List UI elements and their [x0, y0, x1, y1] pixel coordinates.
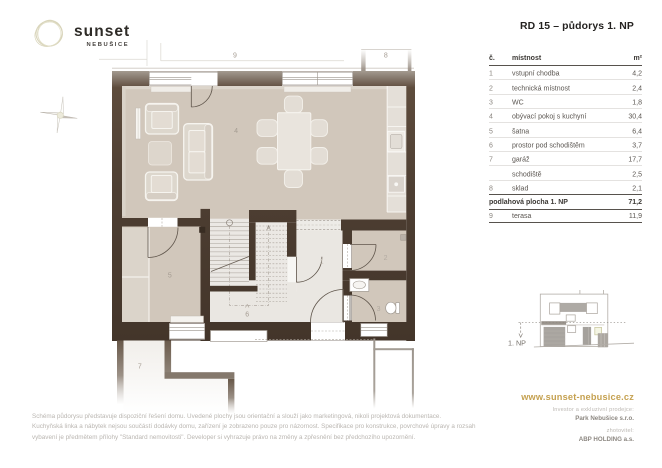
svg-text:6: 6 [245, 312, 249, 319]
svg-text:9: 9 [233, 53, 237, 60]
svg-text:3: 3 [377, 306, 381, 313]
svg-text:8: 8 [384, 53, 388, 60]
svg-text:5: 5 [168, 273, 172, 280]
svg-text:1. NP: 1. NP [508, 339, 526, 348]
svg-text:2: 2 [384, 255, 388, 262]
svg-text:4: 4 [234, 128, 238, 135]
svg-text:1: 1 [320, 259, 324, 266]
svg-text:7: 7 [138, 364, 142, 371]
